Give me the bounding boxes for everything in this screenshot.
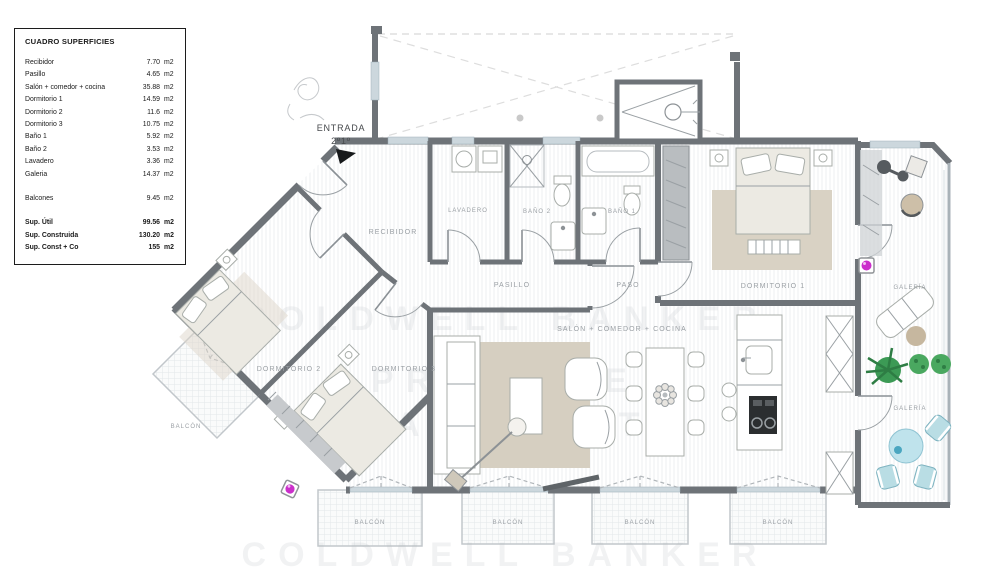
surface-table: CUADRO SUPERFICIES Recibidor7.70m2 Pasil… [14,28,186,265]
sink-icon [551,222,575,250]
label-galeria-2: GALERÍA [893,405,926,412]
entrada-label: ENTRADA [317,123,366,133]
table-row: Salón + comedor + cocina35.88m2 [25,82,179,94]
chair [626,420,642,435]
kitchen-peninsula [737,315,782,450]
label-bano2: BAÑO 2 [523,208,551,215]
label-balcon-2: BALCÓN [493,519,524,526]
label-dormitorio1: DORMITORIO 1 [741,283,805,290]
label-salon: SALÓN + COMEDOR + COCINA [557,324,687,333]
dining-table [646,348,684,456]
side-table [906,326,926,346]
armchair [573,406,615,448]
table-row: Baño 15.92m2 [25,131,179,143]
bed [736,148,810,234]
sofa [434,336,480,474]
floorplan-page: COLDWELL BANKER PRESTIGE REAL ESTATE COL… [0,0,983,568]
label-recibidor: RECIBIDOR [369,229,418,236]
chair [626,386,642,401]
cooktop [749,396,777,434]
stool [722,407,736,421]
table-row: Galeria14.37m2 [25,169,179,181]
wardrobe [663,146,689,260]
surface-table-title: CUADRO SUPERFICIES [25,37,179,46]
table-row-balcones: Balcones9.45m2 [25,193,179,205]
table-row: Dormitorio 114.59m2 [25,94,179,106]
nightstand [710,150,728,166]
table-row-total: Sup. Construida130.20m2 [25,230,179,242]
table-row: Dormitorio 211.6m2 [25,107,179,119]
label-balcon-left: BALCÓN [171,423,202,430]
table-row: Pasillo4.65m2 [25,69,179,81]
label-galeria-1: GALERÍA [893,284,926,291]
toilet-icon [554,176,571,206]
label-dormitorio3: DORMITORIO 3 [372,366,436,373]
centerpiece-icon [654,384,677,407]
table-row: Recibidor7.70m2 [25,57,179,69]
chair [688,386,704,401]
entrada-floor-label: 2º1º [331,136,351,146]
table-row-total: Sup. Útil99.56m2 [25,217,179,229]
nightstand [814,150,832,166]
stool [722,383,736,397]
chair [626,352,642,367]
table-row-total: Sup. Const + Co155m2 [25,242,179,254]
armchair [565,358,607,400]
label-balcon-1: BALCÓN [355,519,386,526]
magenta-marker-icon [281,480,300,499]
room-dormitorio-1 [663,146,832,270]
table-row: Dormitorio 310.75m2 [25,119,179,131]
label-balcon-4: BALCÓN [763,519,794,526]
sink-icon [582,208,606,234]
chair [688,420,704,435]
bathtub-icon [582,146,654,176]
watermark-line4: COLDWELL BANKER [242,536,769,568]
label-dormitorio2: DORMITORIO 2 [257,366,321,373]
label-pasillo: PASILLO [494,282,530,289]
kitchen-sink [746,346,772,374]
shower-room [617,82,700,141]
label-paso: PASO [616,282,639,289]
label-lavadero: LAVADERO [448,208,488,214]
label-bano1: BAÑO 1 [608,208,636,215]
magenta-marker-icon [859,258,874,273]
outdoor-table [889,429,923,463]
table-row: Lavadero3.36m2 [25,156,179,168]
chair [688,352,704,367]
sketch-figure [288,78,324,120]
label-balcon-3: BALCÓN [625,519,656,526]
table-row: Baño 23.53m2 [25,144,179,156]
